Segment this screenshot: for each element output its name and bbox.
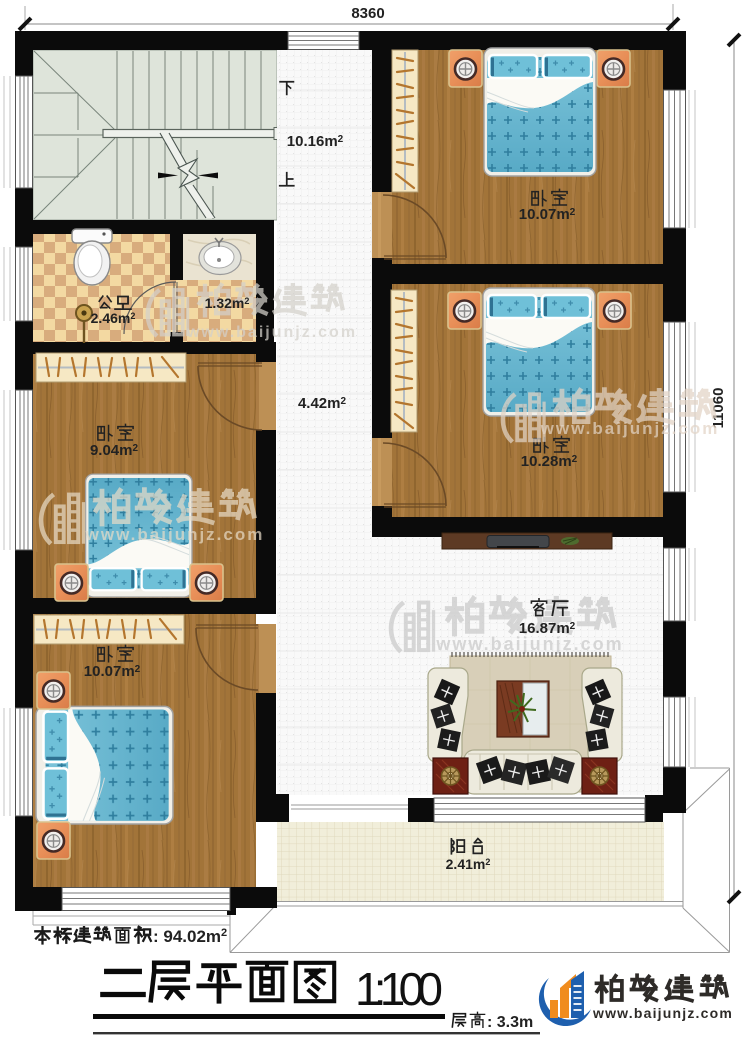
svg-text:www.baijunjz.com: www.baijunjz.com xyxy=(435,634,623,654)
svg-text:www.baijunjz.com: www.baijunjz.com xyxy=(85,525,265,544)
svg-text:1.32m2: 1.32m2 xyxy=(205,295,250,311)
svg-text:www.baijunjz.com: www.baijunjz.com xyxy=(186,324,357,341)
svg-text:16.87m2: 16.87m2 xyxy=(519,620,576,637)
svg-text:www.baijunjz.com: www.baijunjz.com xyxy=(540,419,720,438)
svg-text:8360: 8360 xyxy=(351,5,384,22)
svg-text:10.28m2: 10.28m2 xyxy=(521,453,578,470)
svg-text:10.07m2: 10.07m2 xyxy=(519,206,576,223)
svg-text:9.04m2: 9.04m2 xyxy=(90,442,139,459)
svg-text:4.42m2: 4.42m2 xyxy=(298,395,347,412)
svg-text:2.41m2: 2.41m2 xyxy=(446,856,491,872)
svg-text:10.16m2: 10.16m2 xyxy=(287,133,344,150)
svg-text:2.46m2: 2.46m2 xyxy=(91,310,136,326)
svg-text:: 3.3m: : 3.3m xyxy=(487,1014,533,1031)
svg-text:10.07m2: 10.07m2 xyxy=(84,663,141,680)
svg-text:: 94.02m2: : 94.02m2 xyxy=(153,927,227,946)
svg-text:www.baijunjz.com: www.baijunjz.com xyxy=(592,1005,733,1021)
svg-text:1:100: 1:100 xyxy=(355,963,443,1015)
